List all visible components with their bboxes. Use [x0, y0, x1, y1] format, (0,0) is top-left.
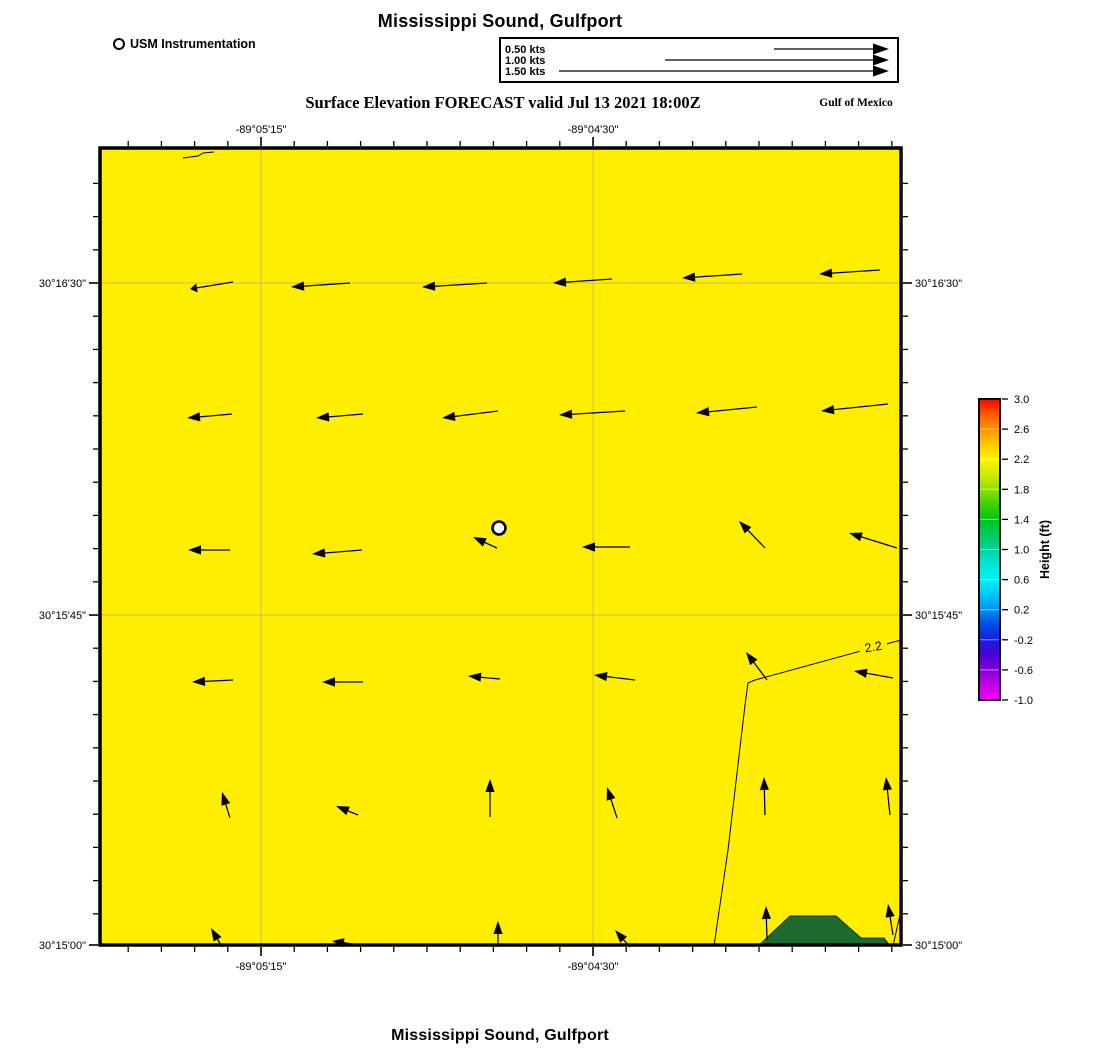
y-axis-label-left: 30°15'45"	[39, 610, 86, 622]
x-axis-label-top: -89°05'15"	[236, 124, 287, 136]
x-axis-label-bottom: -89°05'15"	[236, 961, 287, 973]
colorbar-tick-label: 1.4	[1014, 514, 1029, 526]
x-axis-label-top: -89°04'30"	[568, 124, 619, 136]
usm-instrument-marker	[493, 522, 506, 535]
colorbar-tick-label: 0.6	[1014, 575, 1029, 587]
water-surface	[100, 148, 901, 945]
x-axis-label-bottom: -89°04'30"	[568, 961, 619, 973]
arrow-tail	[766, 919, 767, 940]
colorbar-tick-label: -0.2	[1014, 635, 1033, 647]
y-axis-label-left: 30°15'00"	[39, 940, 86, 952]
colorbar-tick-label: 2.6	[1014, 424, 1029, 436]
colorbar-tick-label: 1.0	[1014, 545, 1029, 557]
colorbar-tick-label: 0.2	[1014, 605, 1029, 617]
colorbar-tick-label: -0.6	[1014, 665, 1033, 677]
colorbar-tick-label: 3.0	[1014, 394, 1029, 406]
colorbar-tick-label: 1.8	[1014, 484, 1029, 496]
y-axis-label-right: 30°16'30"	[915, 278, 962, 290]
colorbar-tick-label: 2.2	[1014, 454, 1029, 466]
y-axis-label-left: 30°16'30"	[39, 278, 86, 290]
colorbar-tick-label: -1.0	[1014, 695, 1033, 707]
arrow-tail	[764, 790, 765, 815]
map-plot: 2.2-89°05'15"-89°05'15"-89°04'30"-89°04'…	[0, 0, 1100, 1050]
y-axis-label-right: 30°15'45"	[915, 610, 962, 622]
colorbar-title: Height (ft)	[1038, 520, 1052, 579]
contour-label-text: 2.2	[864, 639, 884, 656]
forecast-figure: Mississippi Sound, Gulfport USM Instrume…	[0, 0, 1100, 1050]
y-axis-label-right: 30°15'00"	[915, 940, 962, 952]
figure-footer-title: Mississippi Sound, Gulfport	[0, 1027, 1000, 1045]
